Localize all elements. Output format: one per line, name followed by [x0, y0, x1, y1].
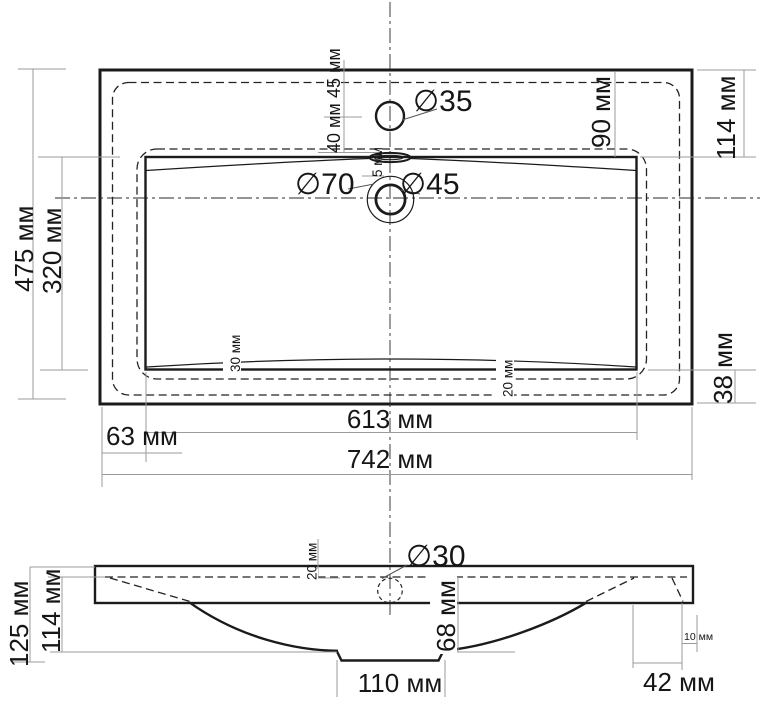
label-drain-inner-diameter: ∅45 — [400, 168, 460, 201]
label-basin-depth: 320 мм — [37, 208, 67, 294]
label-overall-depth: 475 мм — [9, 206, 39, 292]
label-wall-offset: 10 мм — [684, 631, 713, 643]
drain-boss — [337, 651, 444, 661]
label-basin-width: 613 мм — [347, 404, 433, 434]
label-left-margin: 63 мм — [106, 421, 178, 451]
label-overflow-hole-diameter: ∅30 — [406, 540, 466, 573]
label-faucet-offset: 45 мм — [324, 48, 344, 98]
label-bottom-margin: 38 мм — [708, 332, 738, 404]
label-rim-thickness: 20 мм — [305, 543, 320, 580]
bowl-curve — [190, 603, 586, 651]
label-faucet-to-basin: 40 мм — [324, 103, 344, 153]
label-overall-width: 742 мм — [347, 444, 433, 474]
label-overall-height: 125 мм — [4, 581, 34, 667]
drawing-svg: ∅35 ∅70 ∅45 613 мм 63 мм 742 мм 45 мм 40… — [0, 0, 762, 703]
label-drain-outer-diameter: ∅70 — [295, 168, 355, 201]
label-overflow-slot: 5 мм — [370, 147, 385, 177]
washbasin-technical-drawing: ∅35 ∅70 ∅45 613 мм 63 мм 742 мм 45 мм 40… — [0, 0, 762, 703]
label-slope-right: 20 мм — [501, 360, 516, 397]
label-slope-left: 30 мм — [228, 335, 243, 372]
label-drain-boss-width: 110 мм — [358, 668, 442, 698]
label-edge-to-basin-right: 90 мм — [586, 76, 616, 148]
filled-bodies — [95, 70, 693, 603]
label-right-margin: 114 мм — [711, 76, 741, 160]
label-inner-height: 114 мм — [36, 569, 66, 653]
label-basin-inner-depth: 68 мм — [431, 580, 461, 652]
label-faucet-hole-diameter: ∅35 — [413, 85, 473, 118]
label-right-inset: 42 мм — [643, 667, 715, 697]
